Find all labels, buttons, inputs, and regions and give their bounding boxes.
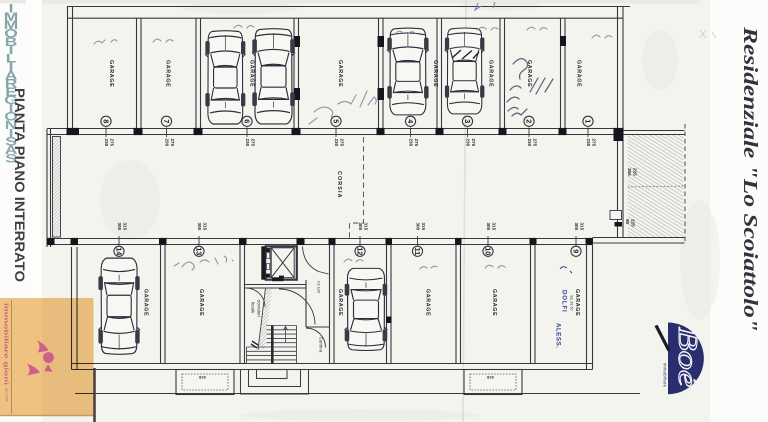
svg-text:230: 230 [586, 139, 591, 147]
svg-text:PIANTA PIANO INTERRATO: PIANTA PIANO INTERRATO [12, 88, 27, 282]
svg-text:12: 12 [355, 247, 364, 255]
svg-text:GARAGE: GARAGE [198, 289, 204, 316]
svg-text:315: 315 [421, 223, 426, 231]
svg-text:315: 315 [122, 223, 127, 231]
svg-text:230: 230 [164, 139, 169, 147]
svg-text:7: 7 [162, 119, 171, 123]
svg-text:8: 8 [101, 119, 110, 123]
svg-text:300: 300 [358, 223, 363, 231]
svg-text:6: 6 [242, 119, 251, 123]
svg-text:GARAGE: GARAGE [491, 289, 497, 316]
svg-text:300: 300 [415, 223, 420, 231]
svg-text:14: 14 [114, 247, 123, 256]
svg-text:GARAGE: GARAGE [249, 60, 255, 87]
svg-text:GARAGE: GARAGE [425, 289, 431, 316]
svg-text:H2 120: H2 120 [317, 281, 321, 293]
svg-text:DOLFI: DOLFI [561, 290, 568, 313]
svg-text:10: 10 [483, 247, 492, 255]
svg-text:immobiliare: immobiliare [663, 363, 668, 388]
svg-text:GARAGE: GARAGE [108, 60, 114, 87]
svg-text:275: 275 [109, 139, 114, 147]
svg-text:GARAGE: GARAGE [574, 289, 580, 316]
svg-text:GARAGE: GARAGE [576, 60, 582, 87]
svg-text:dal 1980: dal 1980 [5, 388, 9, 402]
svg-text:230: 230 [465, 139, 470, 147]
svg-text:355: 355 [627, 168, 632, 176]
svg-text:contatori: contatori [257, 300, 262, 317]
svg-text:225: 225 [630, 219, 635, 227]
svg-text:1: 1 [583, 119, 592, 123]
svg-text:230: 230 [408, 139, 413, 147]
svg-text:300: 300 [117, 223, 122, 231]
svg-text:300: 300 [197, 223, 202, 231]
svg-text:locale: locale [251, 302, 256, 314]
svg-text:230: 230 [527, 139, 532, 147]
svg-text:275: 275 [250, 139, 255, 147]
svg-text:230: 230 [104, 139, 109, 147]
svg-text:828: 828 [487, 375, 494, 380]
svg-text:11: 11 [413, 247, 422, 255]
svg-text:225: 225 [632, 168, 637, 176]
svg-text:GARAGE: GARAGE [337, 60, 343, 87]
svg-text:GARAGE: GARAGE [432, 60, 438, 87]
svg-text:ALESS.: ALESS. [555, 323, 562, 348]
svg-text:828: 828 [199, 375, 206, 380]
svg-text:300: 300 [574, 223, 579, 231]
svg-text:GARAGE: GARAGE [488, 60, 494, 87]
svg-text:immobiliare gioni: immobiliare gioni [3, 303, 9, 386]
svg-text:90: 90 [625, 219, 630, 225]
svg-text:315: 315 [579, 223, 584, 231]
svg-text:275: 275 [414, 139, 419, 147]
svg-text:315: 315 [491, 223, 496, 231]
svg-text:Boé: Boé [673, 327, 703, 388]
svg-text:275: 275 [532, 139, 537, 147]
svg-text:5: 5 [331, 119, 340, 123]
svg-text:315: 315 [202, 223, 207, 231]
svg-text:315: 315 [363, 223, 368, 231]
svg-text:GARAGE: GARAGE [165, 60, 171, 87]
svg-text:275: 275 [339, 139, 344, 147]
svg-text:230: 230 [334, 139, 339, 147]
svg-text:GARAGE: GARAGE [143, 289, 149, 316]
svg-text:Residenziale "Lo Scoiattolo": Residenziale "Lo Scoiattolo" [739, 26, 760, 332]
svg-text:Cantina: Cantina [319, 337, 324, 353]
svg-text:230: 230 [245, 139, 250, 147]
svg-text:2: 2 [524, 119, 533, 123]
svg-text:GARAGE: GARAGE [337, 289, 343, 316]
svg-text:275: 275 [591, 139, 596, 147]
svg-text:275: 275 [170, 139, 175, 147]
svg-text:275: 275 [471, 139, 476, 147]
svg-text:300: 300 [486, 223, 491, 231]
svg-text:mq 28.50: mq 28.50 [570, 295, 574, 311]
svg-text:CORSIA: CORSIA [336, 171, 342, 199]
svg-text:9: 9 [571, 249, 580, 253]
svg-text:3: 3 [463, 119, 472, 123]
svg-text:13: 13 [194, 247, 203, 255]
